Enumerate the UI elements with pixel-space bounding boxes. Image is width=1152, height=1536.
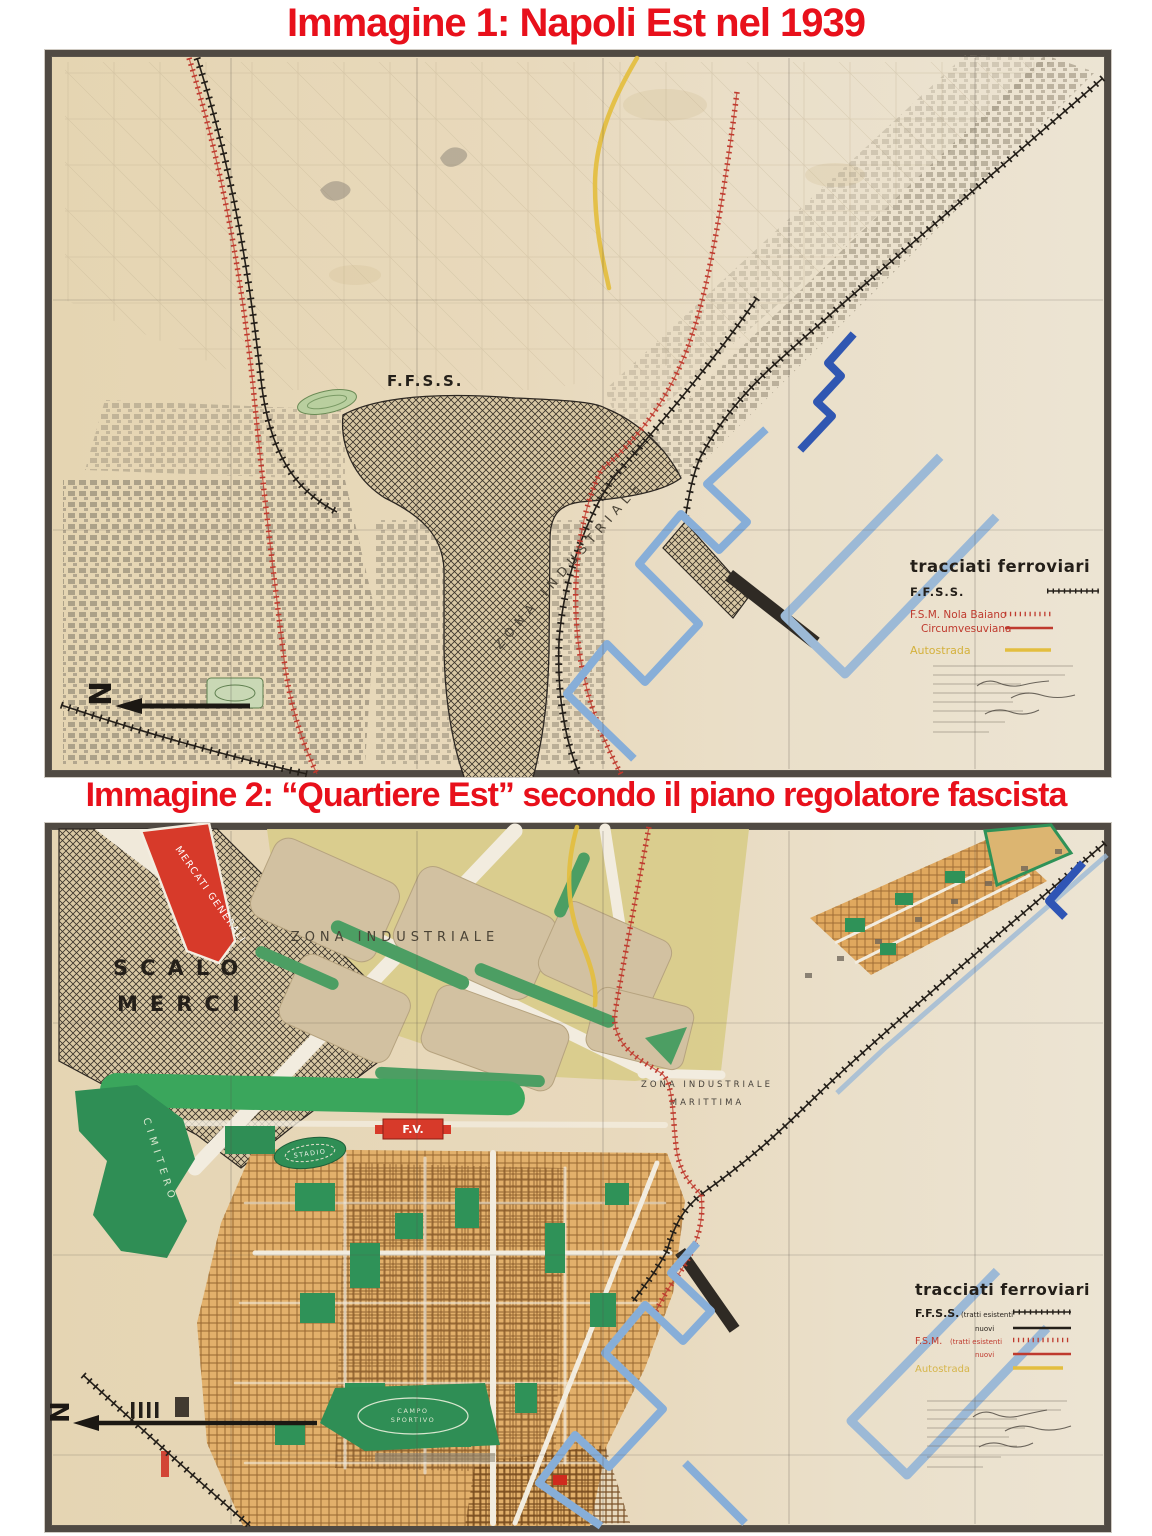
- map1-north-letter: N: [84, 681, 119, 706]
- map2-campo-line1: CAMPO: [397, 1407, 428, 1415]
- map1-legend-autostrada-label: Autostrada: [910, 644, 971, 657]
- map2-svg: MERCATI GENERALI SCALO MERCI ZONA INDUST…: [45, 823, 1111, 1532]
- figure2-map-photo: MERCATI GENERALI SCALO MERCI ZONA INDUST…: [45, 823, 1111, 1532]
- map2-legend-ffss-esistenti: (tratti esistenti: [961, 1311, 1013, 1319]
- map2-zona-industriale-label: ZONA INDUSTRIALE: [291, 930, 499, 945]
- map1-legend-ffss-label: F.F.S.S.: [910, 585, 964, 599]
- map1-legend-circum-label: Circumvesuviana: [921, 623, 1011, 635]
- map2-zona-marittima-line2: MARITTIMA: [670, 1098, 744, 1108]
- map2-legend-fsm-esistenti: (tratti esistenti: [950, 1338, 1002, 1346]
- map1-ffss-label: F.F.S.S.: [387, 372, 463, 390]
- map2-north-letter: N: [46, 1401, 76, 1423]
- map2-campo-line2: SPORTIVO: [391, 1416, 436, 1424]
- map2-legend-fsm-nuovi: nuovi: [975, 1351, 994, 1359]
- page: Immagine 1: Napoli Est nel 1939: [0, 0, 1152, 1536]
- map2-scalo-label: SCALO: [113, 956, 250, 980]
- map1-svg: F.F.S.S. ZONA INDUSTRIALE N tracciati fe…: [45, 50, 1111, 777]
- map1-legend-title: tracciati ferroviari: [910, 557, 1090, 576]
- map2-legend-title: tracciati ferroviari: [915, 1280, 1090, 1299]
- figure1-caption: Immagine 1: Napoli Est nel 1939: [0, 2, 1152, 44]
- figure2-caption: Immagine 2: “Quartiere Est” secondo il p…: [0, 778, 1152, 814]
- map2-zona-marittima-line1: ZONA INDUSTRIALE: [641, 1080, 773, 1090]
- map2-legend-ffss-label: F.F.S.S.: [915, 1307, 959, 1320]
- map2-legend-fsm-label: F.S.M.: [915, 1336, 942, 1347]
- figure1-map-photo: F.F.S.S. ZONA INDUSTRIALE N tracciati fe…: [45, 50, 1111, 777]
- map2-red-building: [553, 1475, 567, 1485]
- map2-fv-station: F.V.: [375, 1119, 451, 1139]
- map1-legend-fsm-label: F.S.M. Nola Baiano: [910, 609, 1006, 621]
- map2-legend-ffss-nuovi: nuovi: [975, 1325, 994, 1333]
- map2-legend-autostrada-label: Autostrada: [915, 1364, 970, 1375]
- map2-fv-label: F.V.: [402, 1123, 423, 1136]
